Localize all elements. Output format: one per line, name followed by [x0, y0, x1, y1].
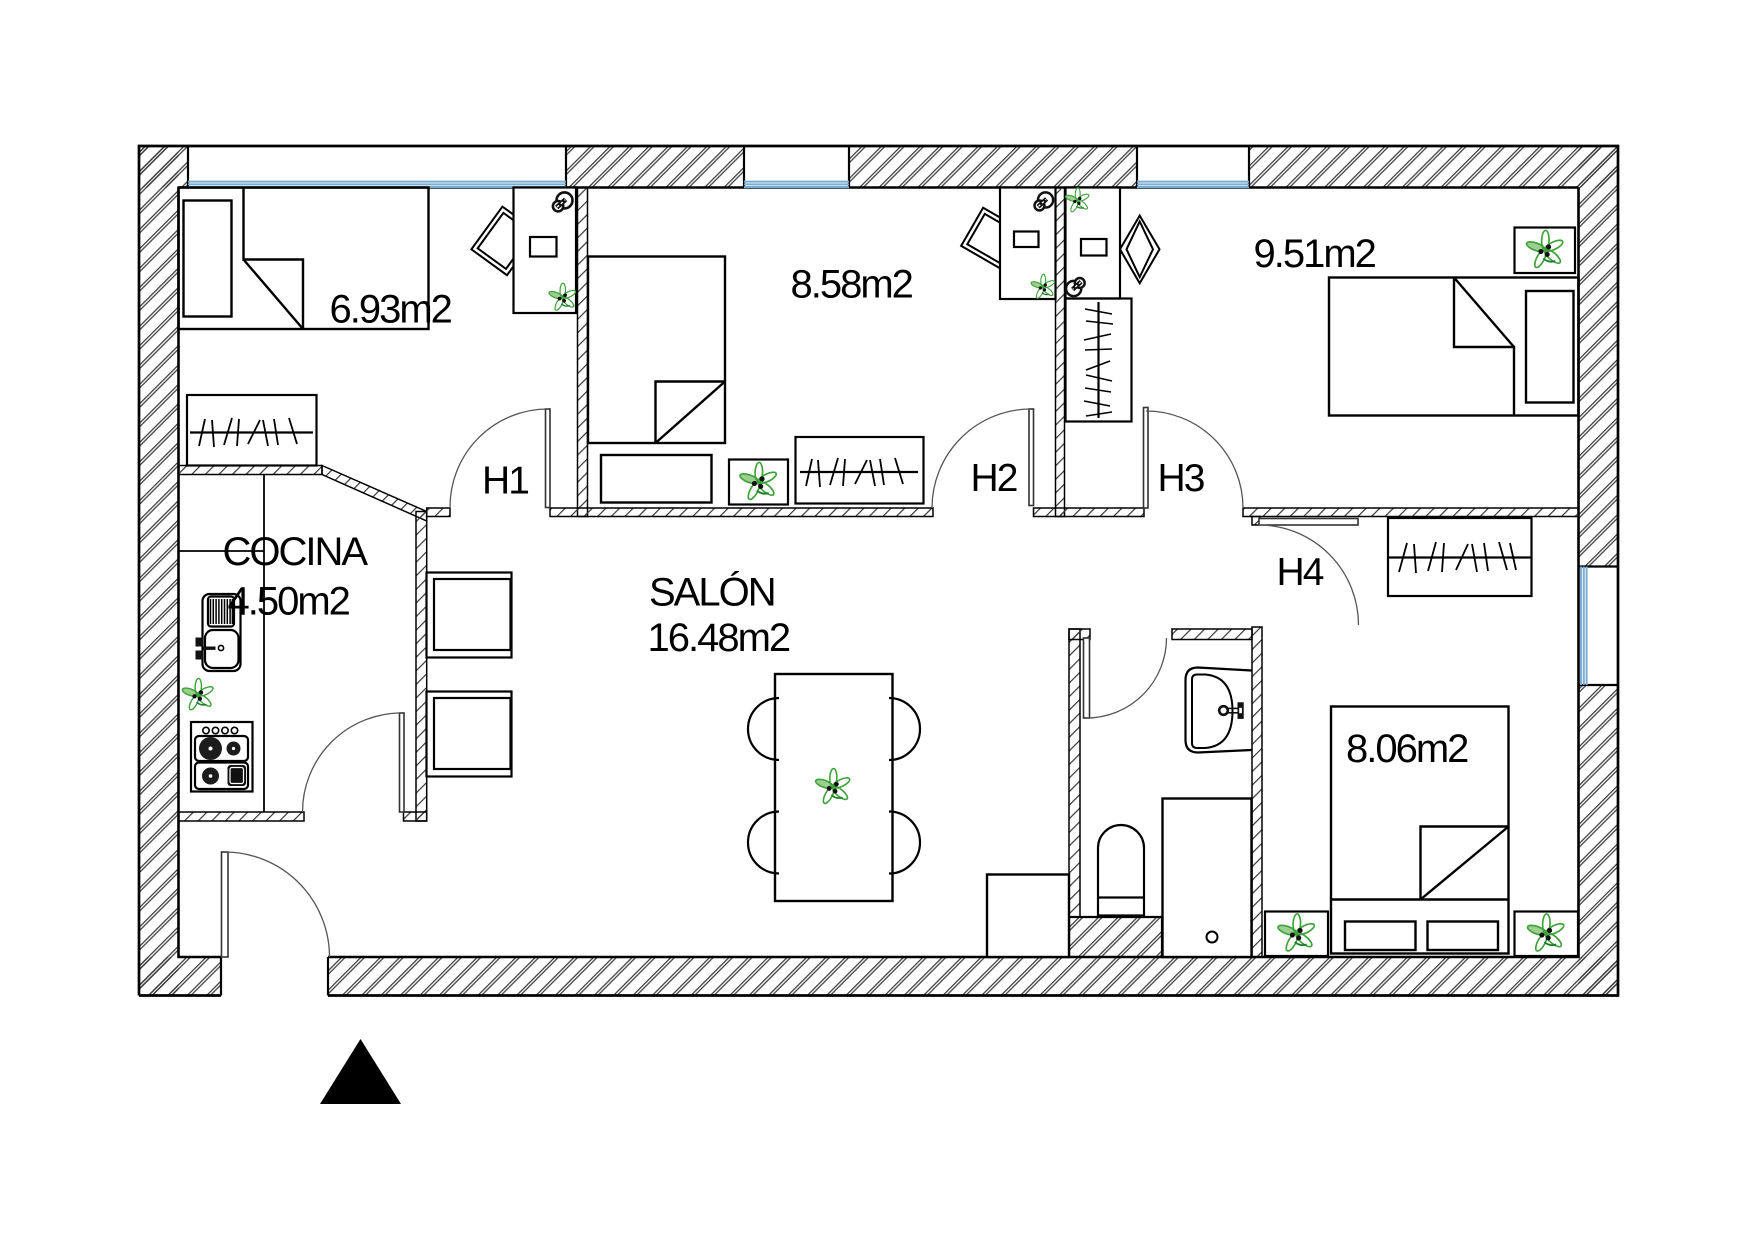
svg-text:H3: H3	[1158, 457, 1204, 500]
svg-text:4.50m2: 4.50m2	[228, 580, 350, 624]
svg-text:6.93m2: 6.93m2	[330, 287, 452, 331]
svg-text:H2: H2	[971, 457, 1017, 500]
svg-text:8.06m2: 8.06m2	[1346, 727, 1468, 771]
svg-text:COCINA: COCINA	[223, 530, 369, 574]
svg-text:8.58m2: 8.58m2	[791, 263, 913, 307]
svg-text:H4: H4	[1277, 551, 1324, 594]
svg-text:16.48m2: 16.48m2	[648, 616, 790, 660]
svg-text:SALÓN: SALÓN	[649, 570, 775, 615]
svg-text:H1: H1	[482, 460, 528, 503]
svg-text:9.51m2: 9.51m2	[1254, 232, 1376, 276]
